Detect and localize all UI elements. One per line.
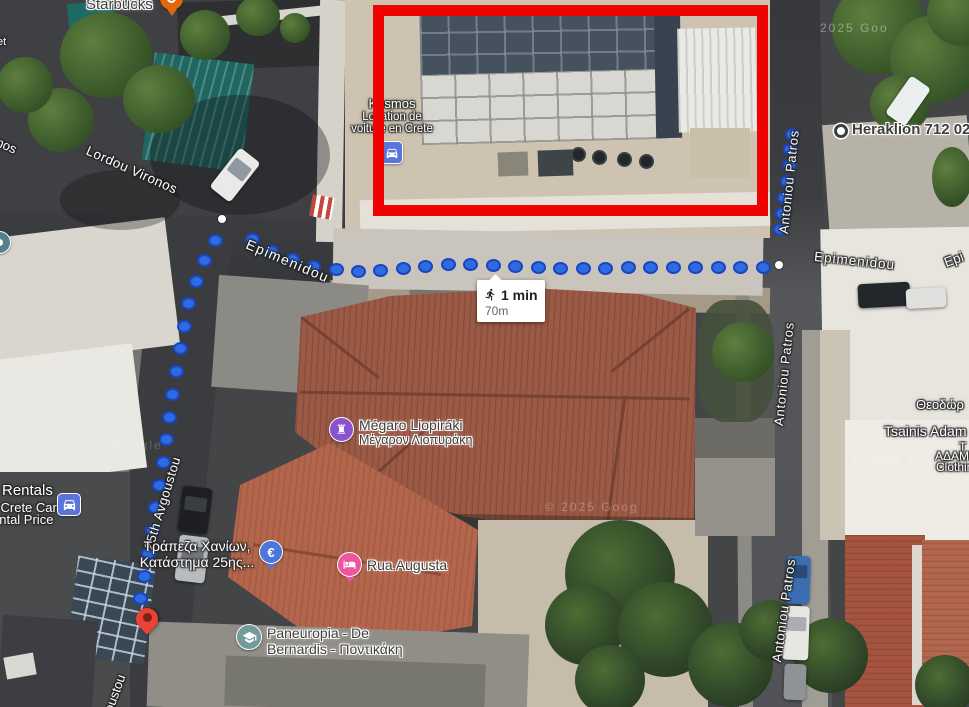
route-dot [463,258,478,271]
car-rental-icon[interactable] [57,493,81,516]
poi-label-fragment: et [0,36,6,48]
route-dot [169,365,184,378]
route-dot [373,264,388,277]
poi-label-bank[interactable]: Τράπεζα Χανίων, Κατάστημα 25ης... [130,538,264,570]
route-dot [711,261,726,274]
route-dot [508,260,523,273]
route-dot [531,261,546,274]
route-dot [181,297,196,310]
poi-label-rentals-line3: ental Price [0,512,53,527]
route-dot [643,261,658,274]
route-dot [576,262,591,275]
route-dot [165,388,180,401]
poi-label-tsainis-clothing: Clothin [936,460,969,474]
postal-code-marker[interactable] [834,124,848,138]
route-dot [351,265,366,278]
destination-pin-dot [143,613,152,622]
poi-label-megaro[interactable]: Mégaro Liopiráki Μέγαρον Λιοπυράκη [359,417,472,447]
poi-label-theodor: Θεοδώρ [916,397,964,412]
route-dot [688,261,703,274]
route-dot [441,258,456,271]
route-dot [137,570,152,583]
route-dot [666,261,681,274]
route-waypoint-dot [775,261,783,269]
route-dot [208,234,223,247]
school-icon[interactable] [236,624,262,650]
route-dot [162,411,177,424]
poi-label-rentals[interactable]: Rentals [2,482,53,499]
route-dot [418,260,433,273]
route-dot [159,433,174,446]
route-dot [133,592,148,605]
route-dot [598,262,613,275]
highlight-rectangle [373,5,768,216]
bank-euro-icon[interactable]: € [259,540,283,564]
poi-label-starbucks[interactable]: Starbucks [86,0,153,13]
route-dot [621,261,636,274]
poi-label-rua-augusta[interactable]: Rua Augusta [367,557,447,573]
route-dot [553,262,568,275]
landmark-icon[interactable]: ♜ [329,417,354,442]
poi-label-paneuropia[interactable]: Paneuropia - De Bernardis - Ποντικάκη [267,625,403,657]
route-waypoint-dot [218,215,226,223]
walking-time-bubble[interactable]: 1 min 70m [477,280,545,322]
route-dot [197,254,212,267]
lodging-icon[interactable] [337,552,362,577]
route-dot [177,320,192,333]
poi-label-heraklion[interactable]: Heraklion 712 02 [852,121,969,138]
route-duration: 1 min [501,287,538,303]
satellite-map-canvas[interactable]: 2025 Goo © 2025 Goog © 2025 G Google Sta… [0,0,969,707]
route-dot [396,262,411,275]
route-dot [733,261,748,274]
route-dot [173,342,188,355]
poi-label-tsainis[interactable]: Tsainis Adam [884,423,966,439]
route-dot [486,259,501,272]
route-dot [756,261,771,274]
route-distance: 70m [485,304,508,318]
starbucks-pin-icon[interactable] [160,0,184,19]
route-dot [189,275,204,288]
